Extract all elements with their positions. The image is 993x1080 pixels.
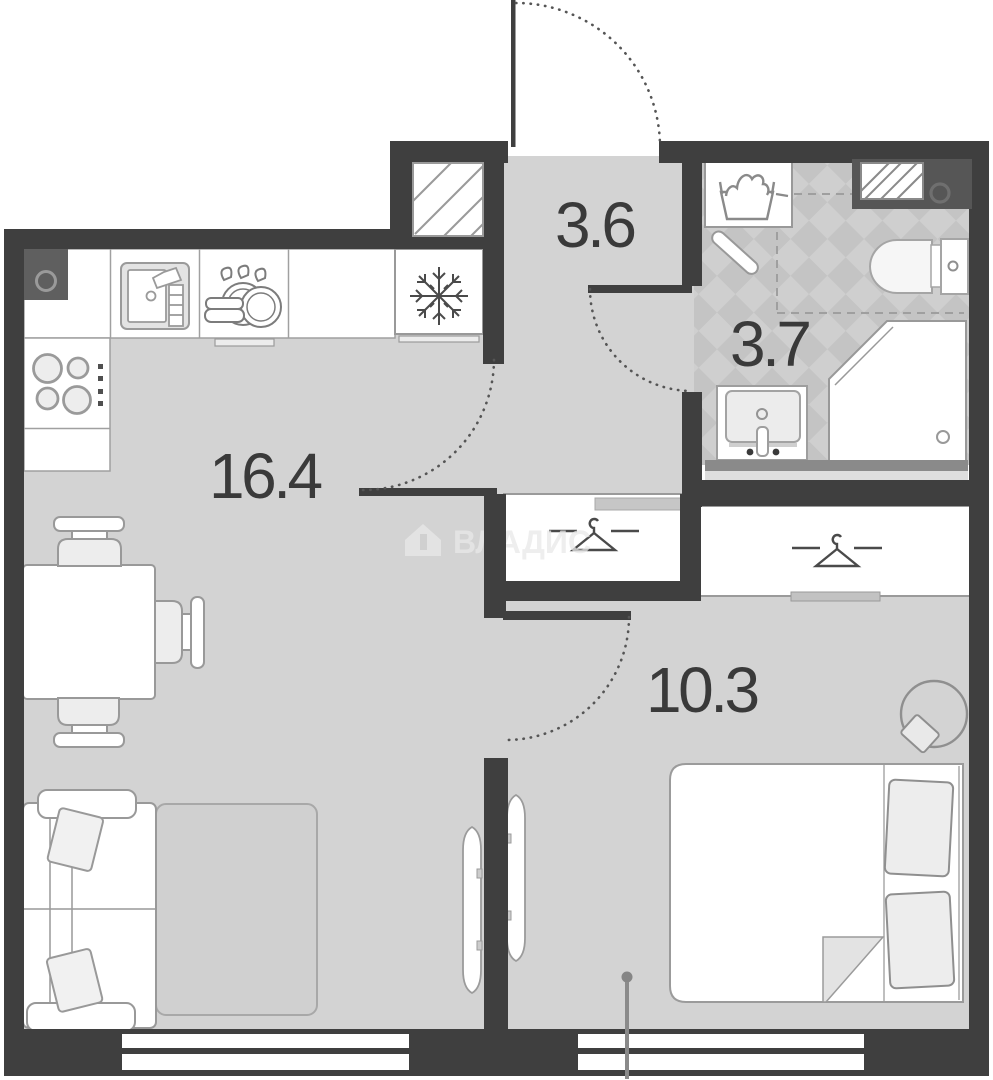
svg-text:10.3: 10.3 [646,654,757,726]
svg-text:3.6: 3.6 [555,189,634,261]
svg-text:ВЛАДИС: ВЛАДИС [453,524,591,560]
svg-text:16.4: 16.4 [209,440,321,512]
svg-text:3.7: 3.7 [730,308,809,380]
